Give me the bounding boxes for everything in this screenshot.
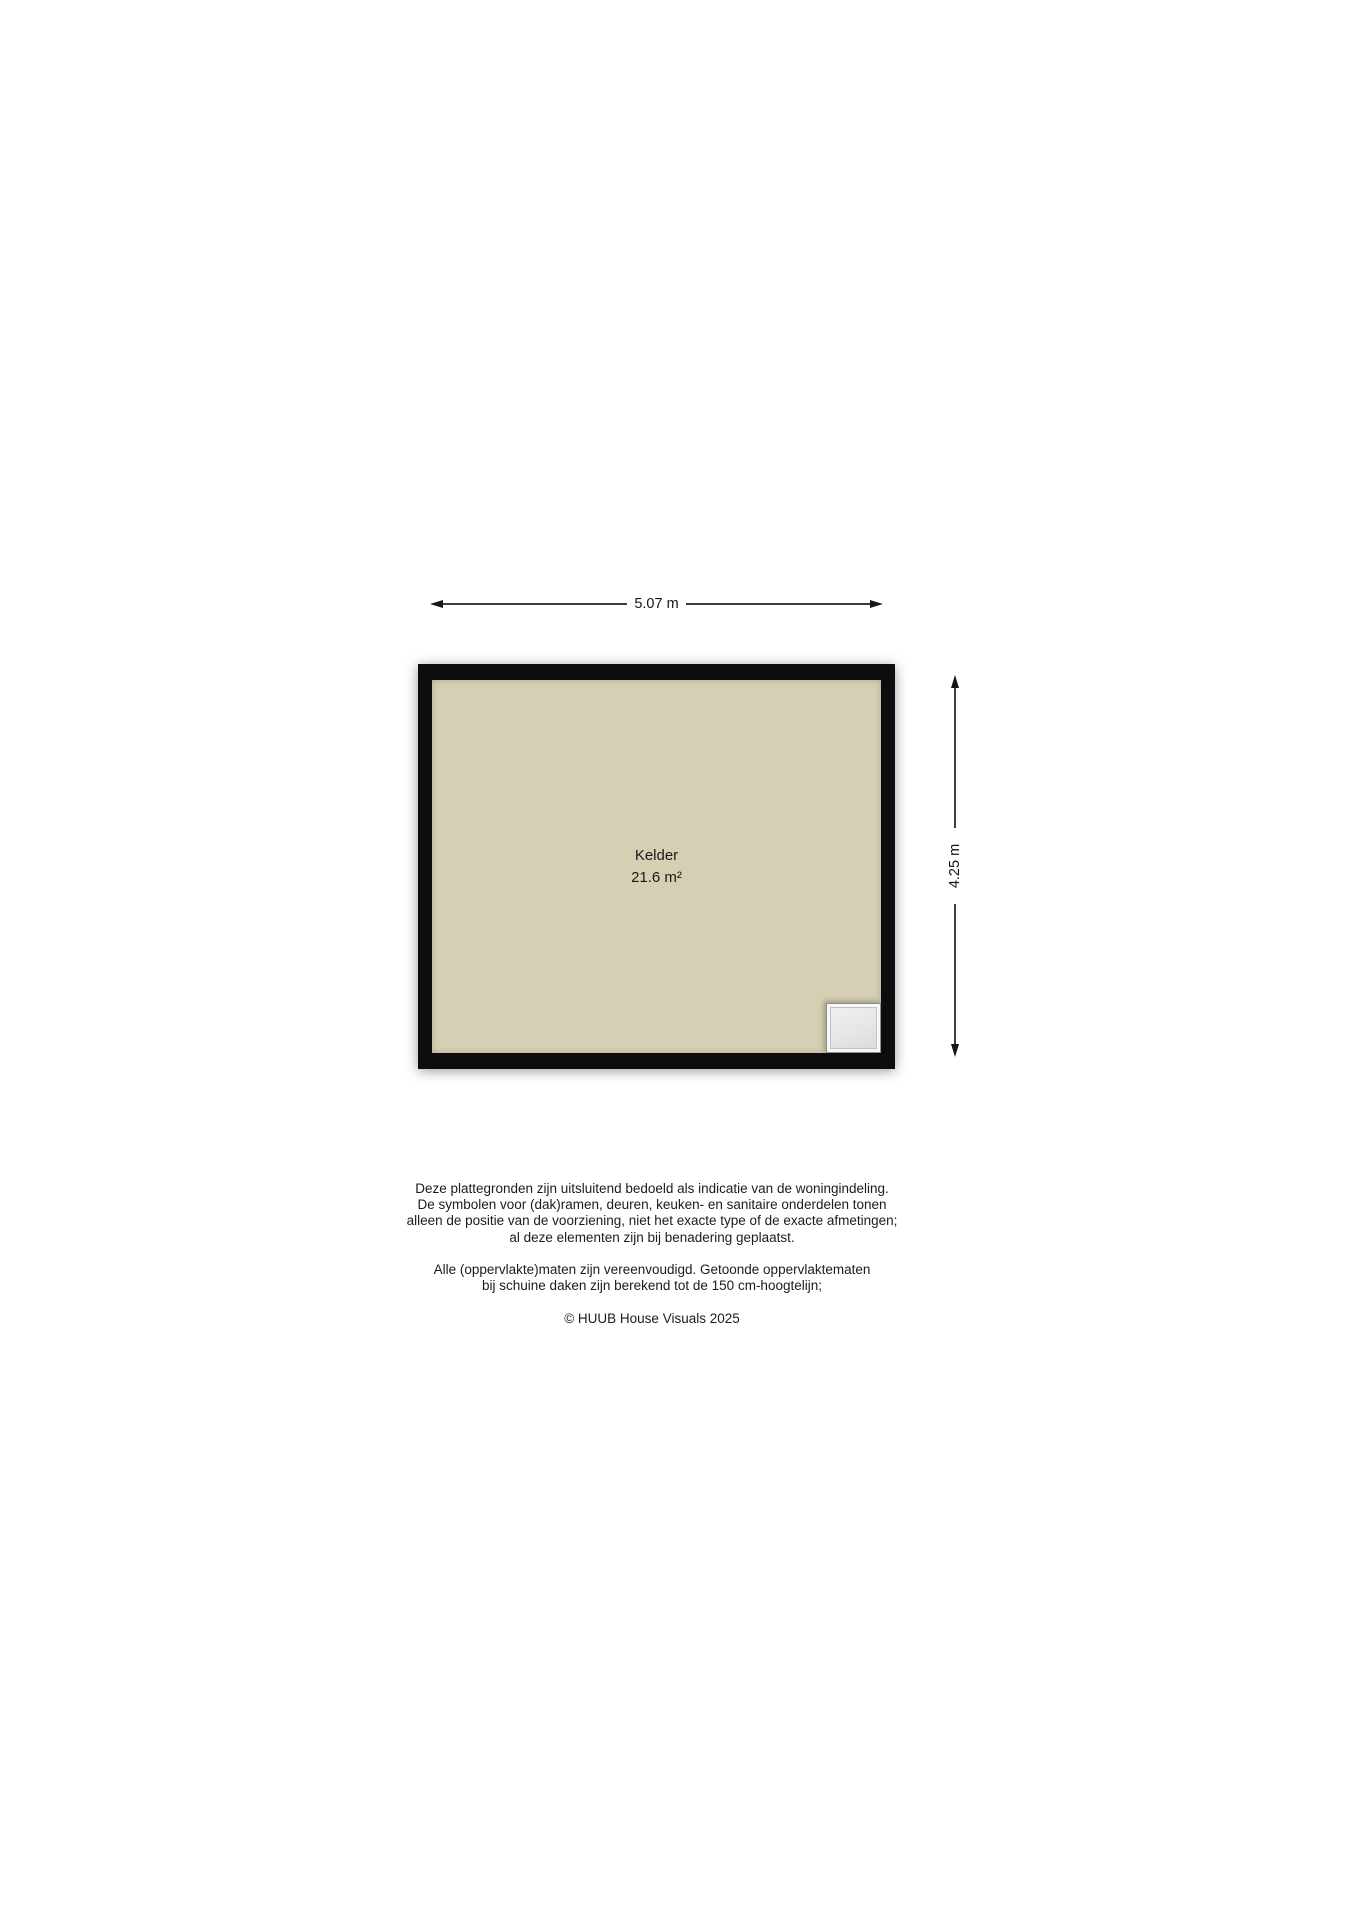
window-symbol: [826, 1003, 881, 1053]
dimension-line: [954, 904, 956, 1044]
arrow-right-icon: [870, 600, 883, 608]
room-area: 21.6 m²: [631, 867, 682, 889]
arrow-down-icon: [951, 1044, 959, 1057]
room-kelder: Kelder 21.6 m²: [432, 680, 881, 1053]
floorplan-page: 5.07 m 4.25 m Kelder 21.6 m² Deze platte…: [0, 0, 1358, 1920]
disclaimer-paragraph-1: Deze plattegronden zijn uitsluitend bedo…: [272, 1181, 1032, 1246]
dimension-height: 4.25 m: [946, 675, 964, 1057]
room-label: Kelder 21.6 m²: [631, 845, 682, 889]
arrow-up-icon: [951, 675, 959, 688]
disclaimer-paragraph-2: Alle (oppervlakte)maten zijn vereenvoudi…: [272, 1262, 1032, 1294]
arrow-left-icon: [430, 600, 443, 608]
floorplan-walls: Kelder 21.6 m²: [418, 664, 895, 1069]
dimension-width-label: 5.07 m: [627, 596, 685, 612]
dimension-line: [443, 603, 627, 605]
footer: Deze plattegronden zijn uitsluitend bedo…: [272, 1181, 1032, 1327]
copyright-text: © HUUB House Visuals 2025: [272, 1311, 1032, 1327]
dimension-height-label-box: 4.25 m: [946, 828, 964, 904]
dimension-width: 5.07 m: [430, 595, 883, 613]
room-name: Kelder: [631, 845, 682, 867]
dimension-line: [686, 603, 870, 605]
dimension-line: [954, 688, 956, 828]
window-symbol-pane: [830, 1007, 877, 1049]
dimension-height-label: 4.25 m: [947, 844, 963, 888]
